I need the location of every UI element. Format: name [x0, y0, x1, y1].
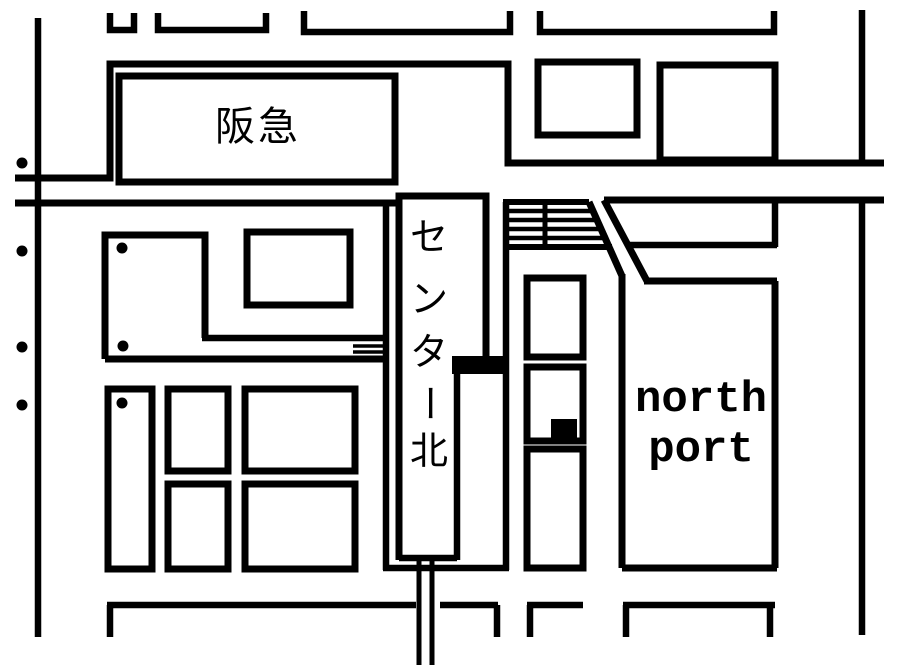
map-canvas: 阪急センター北northport: [0, 0, 897, 668]
north-port-label-line-2: port: [648, 425, 754, 475]
station-label-char-2: ン: [410, 277, 448, 321]
black-square-marker: [551, 419, 577, 438]
roadside-dot-3: [17, 342, 28, 353]
station-label-char-1: セ: [410, 215, 448, 259]
station-step-joint: [452, 356, 509, 374]
station-label-char-3: タ: [410, 330, 448, 374]
station-area-map: 阪急センター北northport: [0, 0, 897, 668]
top-building-2: [158, 13, 266, 30]
roadside-dot-2: [17, 246, 28, 257]
block-dot-3: [117, 398, 128, 409]
sw-building-tall: [108, 389, 152, 569]
mid-upper-building: [247, 232, 350, 305]
building-ne-small: [538, 62, 637, 135]
top-building-1: [110, 13, 134, 30]
mid-column-building-3: [527, 449, 583, 568]
block-dot-2: [118, 341, 129, 352]
block-dot-1: [117, 243, 128, 254]
station-label-char-4: ー: [407, 384, 451, 422]
hankyu-label: 阪急: [215, 104, 301, 150]
top-building-4: [540, 11, 774, 32]
station-label-char-5: 北: [410, 429, 448, 473]
sw-building-2: [168, 389, 228, 471]
roadside-dot-4: [17, 400, 28, 411]
roadside-dot-1: [17, 158, 28, 169]
top-building-3: [304, 11, 510, 32]
mid-column-building-1: [527, 278, 583, 357]
north-port-label-line-1: north: [635, 375, 767, 425]
sw-building-3: [168, 484, 228, 569]
west-lblock-outline: [105, 235, 205, 359]
building-ne-large: [660, 65, 775, 160]
sw-building-5: [245, 484, 355, 569]
diagonal-road-east: [604, 200, 647, 281]
sw-building-4: [245, 389, 355, 471]
